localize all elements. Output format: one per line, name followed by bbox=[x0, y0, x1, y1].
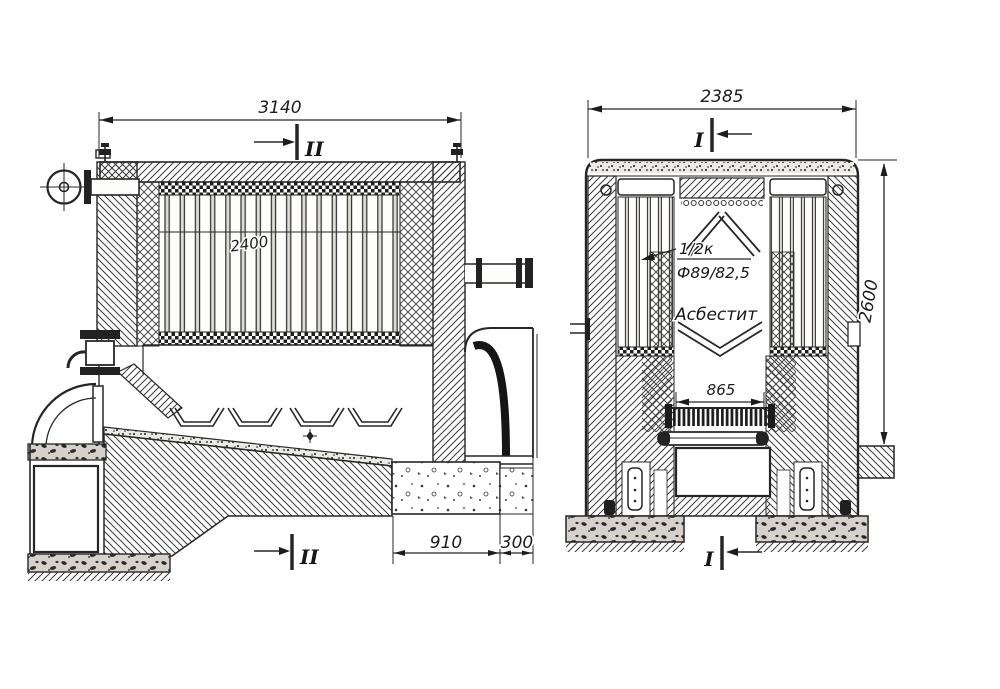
wall-fitting-right bbox=[848, 322, 860, 346]
note-line2: Ф89/82,5 bbox=[677, 264, 750, 282]
front-chute bbox=[118, 364, 182, 418]
material-note: Асбестит bbox=[674, 305, 758, 325]
right-view: 2385 I bbox=[566, 87, 897, 571]
section-I-bottom-label: I bbox=[703, 547, 714, 571]
anchor-slot-right bbox=[794, 462, 822, 516]
dimension-2600: 2600 bbox=[855, 160, 897, 445]
note-line1: 1/2к bbox=[679, 240, 714, 258]
concrete-under-duct bbox=[500, 468, 533, 514]
ground-hatch-left bbox=[28, 572, 170, 581]
tube-bank-top-header bbox=[159, 182, 400, 195]
masonry-mass bbox=[104, 434, 392, 556]
right-lattice-band bbox=[400, 182, 433, 346]
masonry-under-ashbox bbox=[674, 496, 770, 516]
dim-910-label: 910 bbox=[430, 533, 462, 553]
drawing-canvas: 3140 II bbox=[0, 0, 1000, 689]
foundation-strip-rv-left bbox=[566, 516, 684, 542]
left-lattice-band bbox=[137, 182, 159, 346]
ash-door-opening bbox=[34, 466, 98, 552]
section-I-top-label: I bbox=[693, 128, 704, 152]
ground-hatch-rv-right bbox=[756, 542, 868, 552]
front-platform bbox=[28, 444, 106, 460]
anchor-slot-left bbox=[622, 462, 650, 516]
ground-hatch-rv-left bbox=[566, 542, 684, 552]
front-arch-inner bbox=[46, 398, 96, 446]
boiler-top-cover bbox=[100, 162, 460, 182]
section-II-top-label: II bbox=[304, 137, 324, 161]
trough-row bbox=[170, 408, 402, 426]
front-arch-outer bbox=[32, 384, 96, 446]
wall-stub-pipe bbox=[570, 318, 590, 340]
dimension-2385: 2385 bbox=[588, 87, 856, 158]
left-view: 3140 II bbox=[28, 98, 537, 581]
wall-left bbox=[588, 176, 616, 516]
center-marker-icon bbox=[303, 429, 317, 443]
boiler-sectional-drawing: 3140 II bbox=[0, 0, 1000, 689]
center-ceiling-block bbox=[680, 178, 764, 198]
tube-bank-tubes bbox=[159, 195, 400, 332]
flue-arch-band bbox=[474, 345, 506, 456]
flanged-pipe bbox=[465, 258, 533, 288]
concrete-foundation-block bbox=[392, 462, 500, 514]
tube-bank: 2400 bbox=[159, 182, 400, 345]
dim-300-label: 300 bbox=[501, 533, 533, 553]
tube-bank-bottom-header bbox=[159, 332, 400, 345]
narrow-slot-left bbox=[654, 470, 667, 516]
grate bbox=[665, 404, 775, 428]
tube-group-right bbox=[770, 179, 826, 356]
flue-duct bbox=[465, 328, 537, 464]
foundation-strip-left bbox=[28, 554, 170, 572]
corner-stub-left bbox=[604, 500, 615, 515]
dim-2600-label: 2600 bbox=[855, 278, 882, 324]
ash-box bbox=[676, 448, 770, 496]
front-post bbox=[93, 386, 103, 442]
section-mark-II-top: II bbox=[254, 124, 324, 161]
section-II-bottom-label: II bbox=[299, 545, 319, 569]
section-mark-I-bottom: I bbox=[703, 536, 762, 571]
insulation-beads-band bbox=[681, 199, 763, 210]
foundation-strip-rv-right bbox=[756, 516, 868, 542]
top-insulation-band bbox=[590, 162, 854, 173]
trough bbox=[228, 408, 282, 426]
cover-bolt-left bbox=[99, 143, 111, 162]
tube-group-left bbox=[618, 179, 674, 356]
right-wall-masonry bbox=[433, 162, 465, 468]
section-mark-II-bottom: II bbox=[254, 534, 319, 570]
grate-roller bbox=[658, 432, 768, 445]
blowdown-fitting bbox=[68, 330, 120, 375]
dim-865-label: 865 bbox=[707, 381, 736, 399]
ground-ledge bbox=[858, 446, 894, 478]
dim-2385-label: 2385 bbox=[700, 87, 743, 107]
corner-stub-right bbox=[840, 500, 851, 515]
dimension-3140: 3140 bbox=[99, 98, 461, 158]
narrow-slot-right bbox=[777, 470, 790, 516]
trough bbox=[290, 408, 344, 426]
dim-3140-label: 3140 bbox=[258, 98, 301, 118]
section-mark-I-top: I bbox=[693, 118, 752, 152]
trough bbox=[348, 408, 402, 426]
